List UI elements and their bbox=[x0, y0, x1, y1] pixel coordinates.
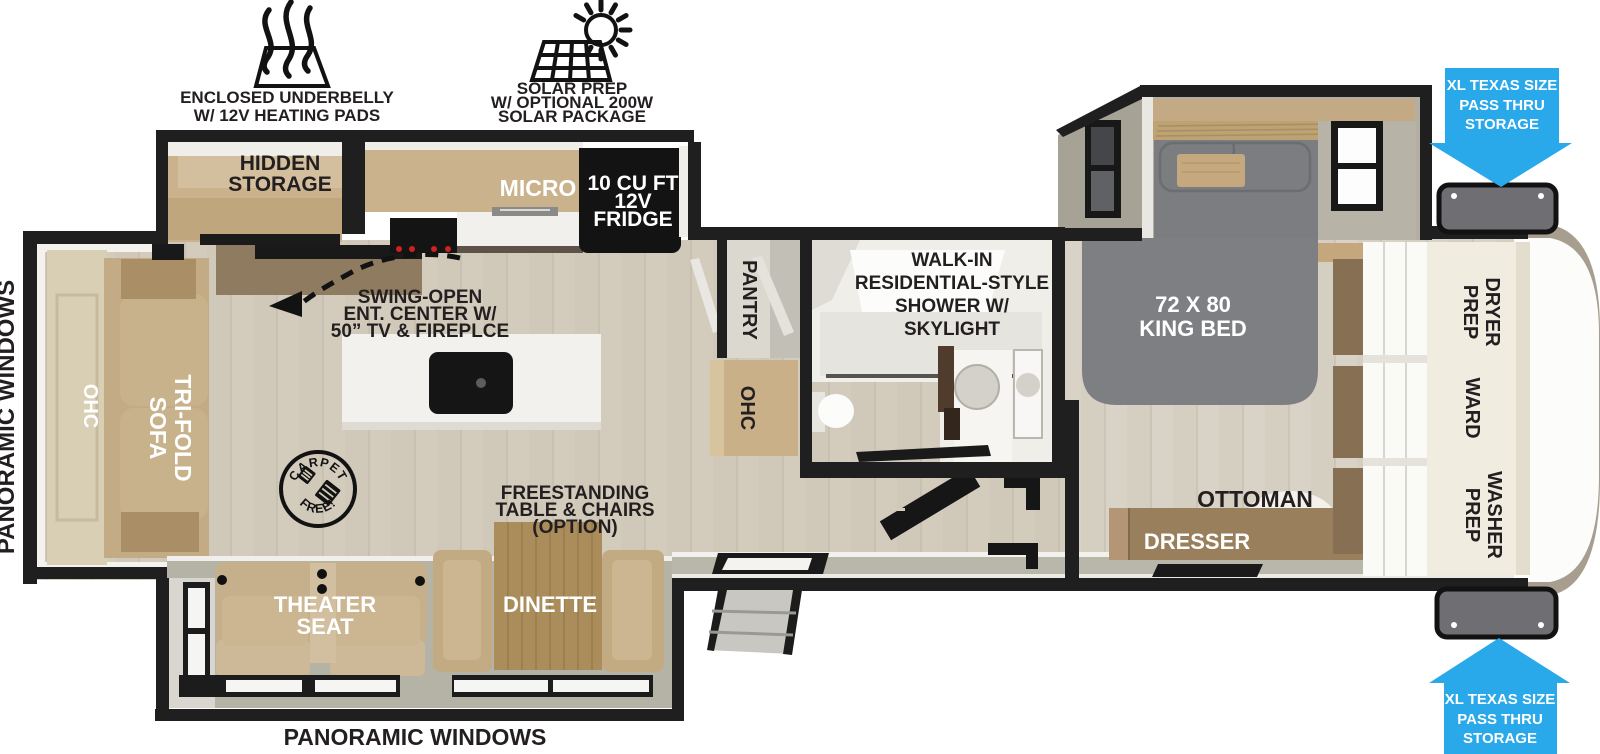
svg-text:50” TV & FIREPLCE: 50” TV & FIREPLCE bbox=[331, 321, 509, 342]
svg-text:DRESSER: DRESSER bbox=[1144, 529, 1250, 554]
svg-text:OHC: OHC bbox=[736, 386, 758, 430]
svg-text:SOFA: SOFA bbox=[145, 397, 171, 460]
svg-text:PANTRY: PANTRY bbox=[738, 260, 760, 341]
svg-text:SEAT: SEAT bbox=[296, 614, 354, 639]
svg-text:WARD: WARD bbox=[1461, 377, 1483, 438]
svg-text:HIDDEN: HIDDEN bbox=[240, 152, 321, 175]
svg-text:KING BED: KING BED bbox=[1139, 316, 1247, 341]
svg-text:WALK-IN: WALK-IN bbox=[911, 250, 992, 271]
svg-text:(OPTION): (OPTION) bbox=[532, 517, 618, 538]
svg-text:PANORAMIC WINDOWS: PANORAMIC WINDOWS bbox=[0, 280, 20, 554]
svg-text:STORAGE: STORAGE bbox=[228, 173, 331, 196]
svg-text:STORAGE: STORAGE bbox=[1465, 116, 1539, 133]
svg-text:PREP: PREP bbox=[1459, 285, 1481, 339]
svg-text:OTTOMAN: OTTOMAN bbox=[1197, 486, 1313, 512]
svg-text:FRIDGE: FRIDGE bbox=[593, 208, 672, 231]
svg-text:W/ 12V HEATING PADS: W/ 12V HEATING PADS bbox=[194, 106, 380, 125]
svg-text:RESIDENTIAL-STYLE: RESIDENTIAL-STYLE bbox=[855, 273, 1049, 294]
svg-text:SOLAR PACKAGE: SOLAR PACKAGE bbox=[498, 107, 646, 126]
svg-text:XL TEXAS SIZE: XL TEXAS SIZE bbox=[1445, 691, 1556, 708]
svg-text:PANORAMIC WINDOWS: PANORAMIC WINDOWS bbox=[284, 724, 547, 750]
svg-text:PASS THRU: PASS THRU bbox=[1457, 711, 1543, 728]
svg-text:PREP: PREP bbox=[1461, 488, 1483, 542]
svg-text:ENCLOSED UNDERBELLY: ENCLOSED UNDERBELLY bbox=[180, 88, 394, 107]
svg-text:XL TEXAS SIZE: XL TEXAS SIZE bbox=[1447, 77, 1558, 94]
svg-text:OHC: OHC bbox=[79, 384, 101, 428]
svg-text:SHOWER W/: SHOWER W/ bbox=[895, 296, 1010, 317]
svg-text:PASS THRU: PASS THRU bbox=[1459, 97, 1545, 114]
svg-text:WASHER: WASHER bbox=[1483, 471, 1505, 559]
svg-text:MICRO: MICRO bbox=[500, 175, 577, 201]
svg-text:STORAGE: STORAGE bbox=[1463, 730, 1537, 747]
svg-text:72 X 80: 72 X 80 bbox=[1155, 292, 1231, 317]
svg-text:DINETTE: DINETTE bbox=[503, 592, 597, 617]
svg-text:DRYER: DRYER bbox=[1481, 277, 1503, 347]
svg-text:TRI-FOLD: TRI-FOLD bbox=[170, 374, 196, 481]
svg-text:SKYLIGHT: SKYLIGHT bbox=[904, 319, 1000, 340]
